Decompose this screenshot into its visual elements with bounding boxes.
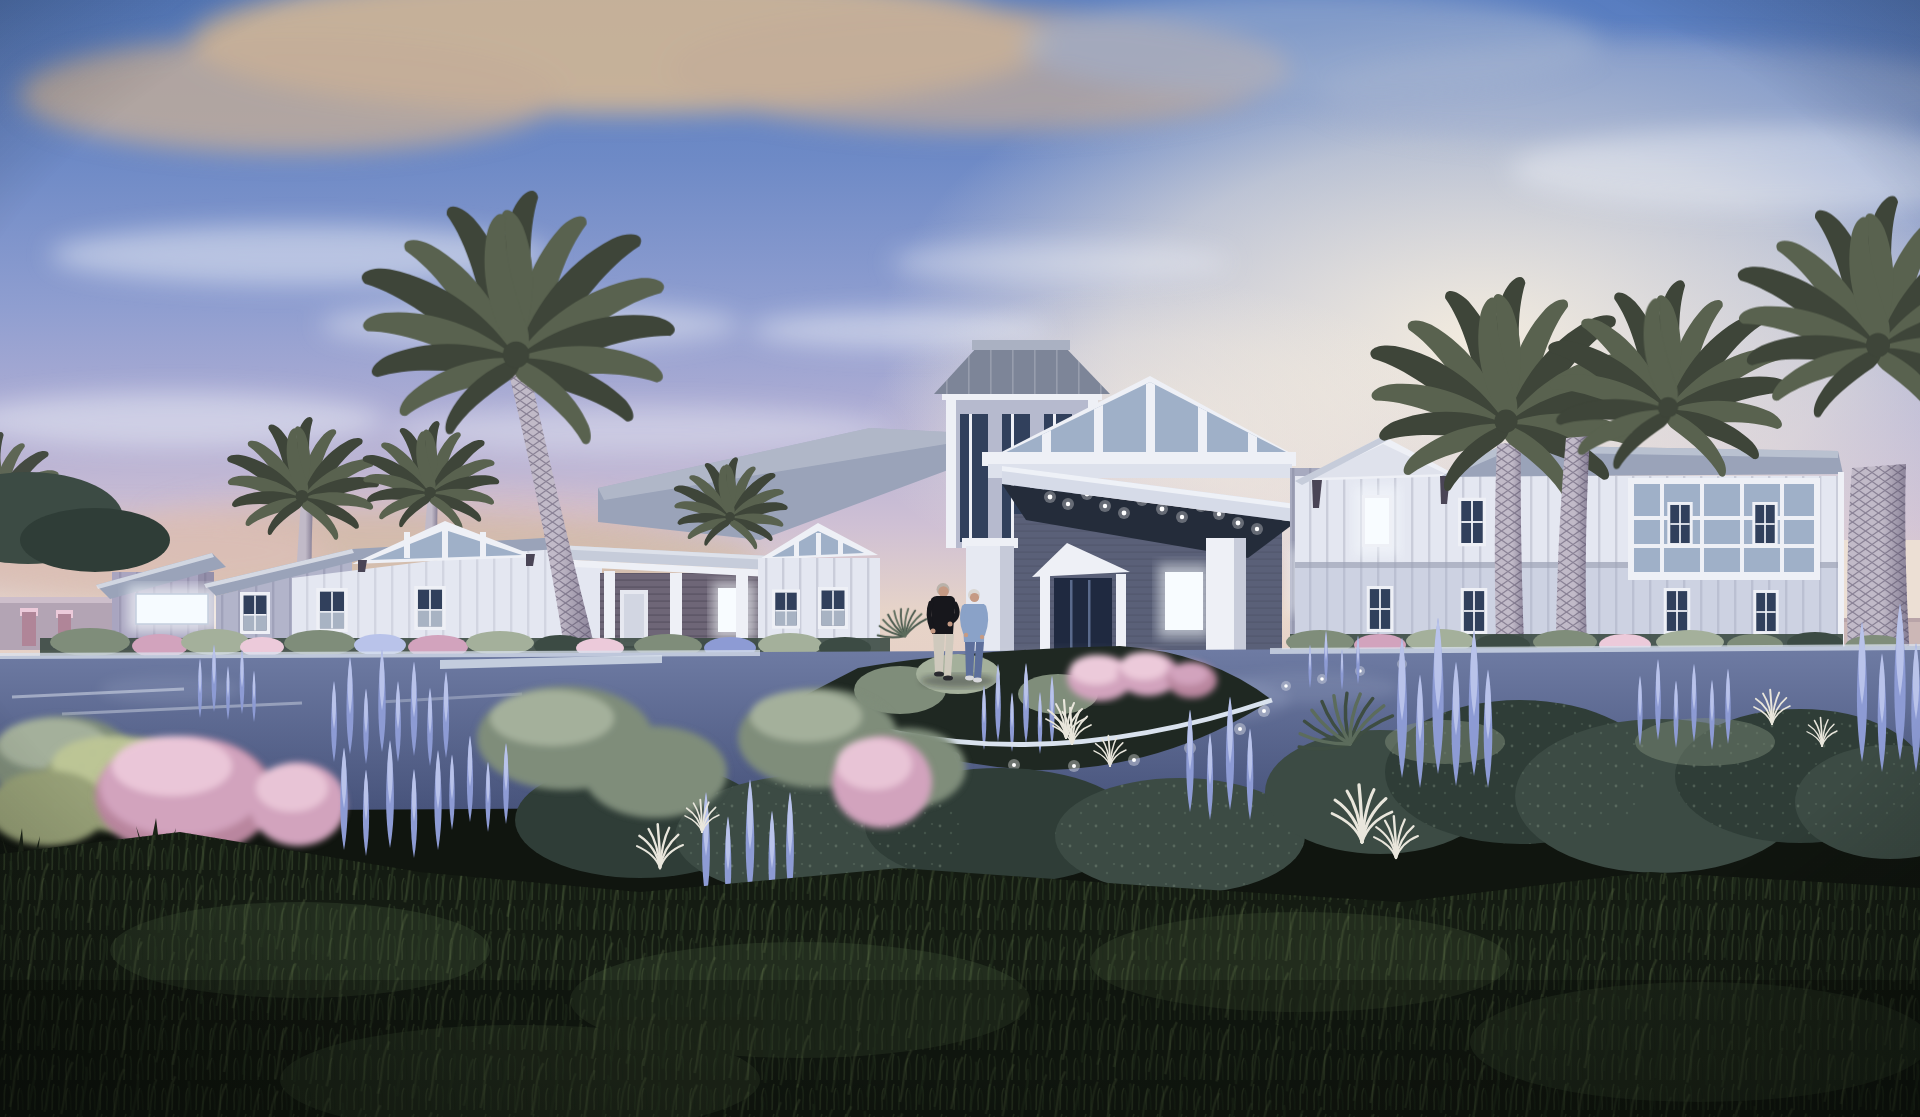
bottom-shade (0, 980, 1920, 1117)
vignette (0, 0, 1920, 1117)
rendering-canvas (0, 0, 1920, 1117)
